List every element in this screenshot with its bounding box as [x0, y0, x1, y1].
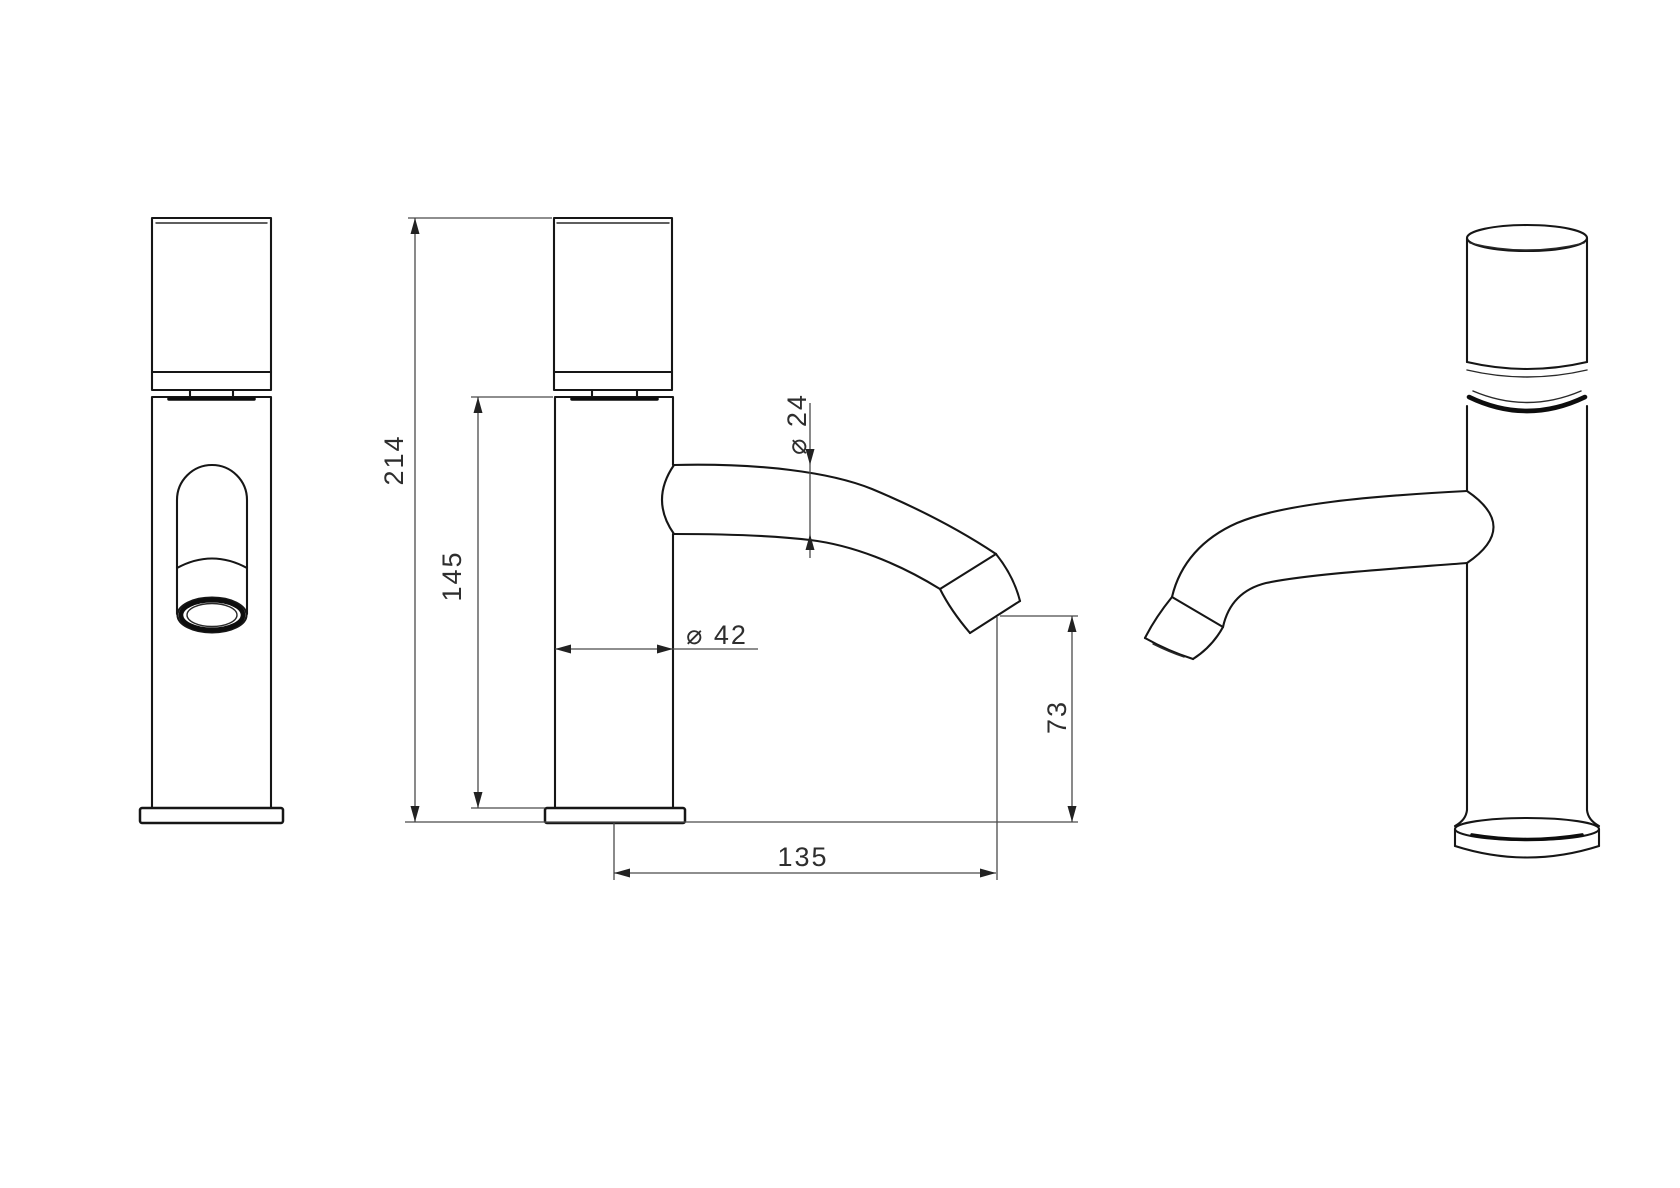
persp-cap-rim-arc — [1467, 370, 1587, 377]
side-spout-outlet-face — [970, 601, 1020, 633]
persp-spout-tip-right-edge — [1193, 627, 1223, 659]
dim-42-arrow-right — [657, 645, 673, 654]
persp-cap-top-ellipse — [1467, 225, 1587, 251]
persp-neck-ring-upper — [1473, 391, 1581, 403]
dimensions: 214 145 ⌀ 24 ⌀ 42 — [379, 218, 1078, 880]
persp-cap-bottom-arc — [1467, 362, 1587, 369]
persp-base-contact-shadow — [1472, 835, 1582, 840]
side-spout-bottom-edge — [674, 534, 940, 589]
dim-73-arrow-bottom — [1068, 806, 1077, 822]
rear-spout-shoulder — [177, 559, 247, 569]
side-base-plate — [545, 808, 685, 823]
dim-214-label: 214 — [379, 434, 409, 485]
persp-spout-outlet-face — [1145, 638, 1193, 659]
persp-spout-top-edge — [1172, 491, 1467, 597]
dim-214-arrow-top — [411, 218, 420, 234]
dim-145-label: 145 — [437, 550, 467, 601]
dim-body-height: 145 — [437, 397, 553, 808]
persp-spout-body-junction — [1467, 491, 1494, 563]
side-spout-tip-left-edge — [940, 589, 970, 633]
rear-outlet-outer-ring — [178, 598, 247, 633]
dim-outlet-height: 73 — [1000, 616, 1078, 822]
dim-body-diameter: ⌀ 42 — [555, 620, 758, 654]
perspective-view — [1145, 225, 1599, 858]
dim-145-arrow-bottom — [474, 792, 483, 808]
dim-73-label: 73 — [1042, 700, 1072, 734]
dim-135-arrow-left — [614, 869, 630, 878]
side-body-outline — [555, 397, 673, 808]
rear-cap-outline — [152, 218, 271, 390]
side-spout-aerator-joint — [940, 554, 996, 589]
persp-body-left-edge — [1455, 406, 1467, 826]
dim-42-arrow-left — [555, 645, 571, 654]
dim-overall-height: 214 — [379, 218, 1078, 822]
dim-24-arrow-bottom — [806, 534, 815, 550]
side-spout-tip-right-edge — [996, 554, 1020, 601]
persp-body-right-edge — [1587, 406, 1599, 826]
dim-214-arrow-bottom — [411, 806, 420, 822]
side-cap-outline — [554, 218, 672, 390]
persp-spout-bottom-edge — [1223, 563, 1467, 627]
dim-spout-reach: 135 — [614, 617, 997, 880]
dim-42-label: ⌀ 42 — [686, 620, 748, 650]
rear-view — [140, 218, 283, 823]
persp-base-bottom-arc — [1455, 846, 1599, 858]
rear-outlet-dark-ring — [181, 600, 243, 630]
rear-outlet-inner-ring — [187, 604, 237, 627]
persp-spout-aerator-joint — [1172, 597, 1223, 627]
rear-base-plate — [140, 808, 283, 823]
dim-135-arrow-right — [980, 869, 996, 878]
persp-cap-sides — [1467, 238, 1587, 362]
persp-spout-tip-left-edge — [1145, 597, 1172, 638]
dim-24-label: ⌀ 24 — [782, 393, 812, 455]
dim-spout-diameter: ⌀ 24 — [782, 393, 815, 558]
persp-cap-top-inner-rim — [1470, 243, 1584, 250]
dim-145-arrow-top — [474, 397, 483, 413]
dim-73-arrow-top — [1068, 616, 1077, 632]
faucet-technical-drawing-page: 214 145 ⌀ 24 ⌀ 42 — [0, 0, 1680, 1188]
dim-135-label: 135 — [777, 842, 828, 872]
persp-outlet-rim-line — [1153, 644, 1184, 657]
side-view — [545, 218, 1020, 823]
side-spout-body-junction — [662, 465, 674, 534]
persp-neck-ring-dark — [1469, 397, 1585, 411]
side-spout-top-edge — [674, 465, 996, 554]
technical-drawing-canvas: 214 145 ⌀ 24 ⌀ 42 — [0, 0, 1680, 1188]
rear-spout-capsule — [177, 465, 247, 614]
